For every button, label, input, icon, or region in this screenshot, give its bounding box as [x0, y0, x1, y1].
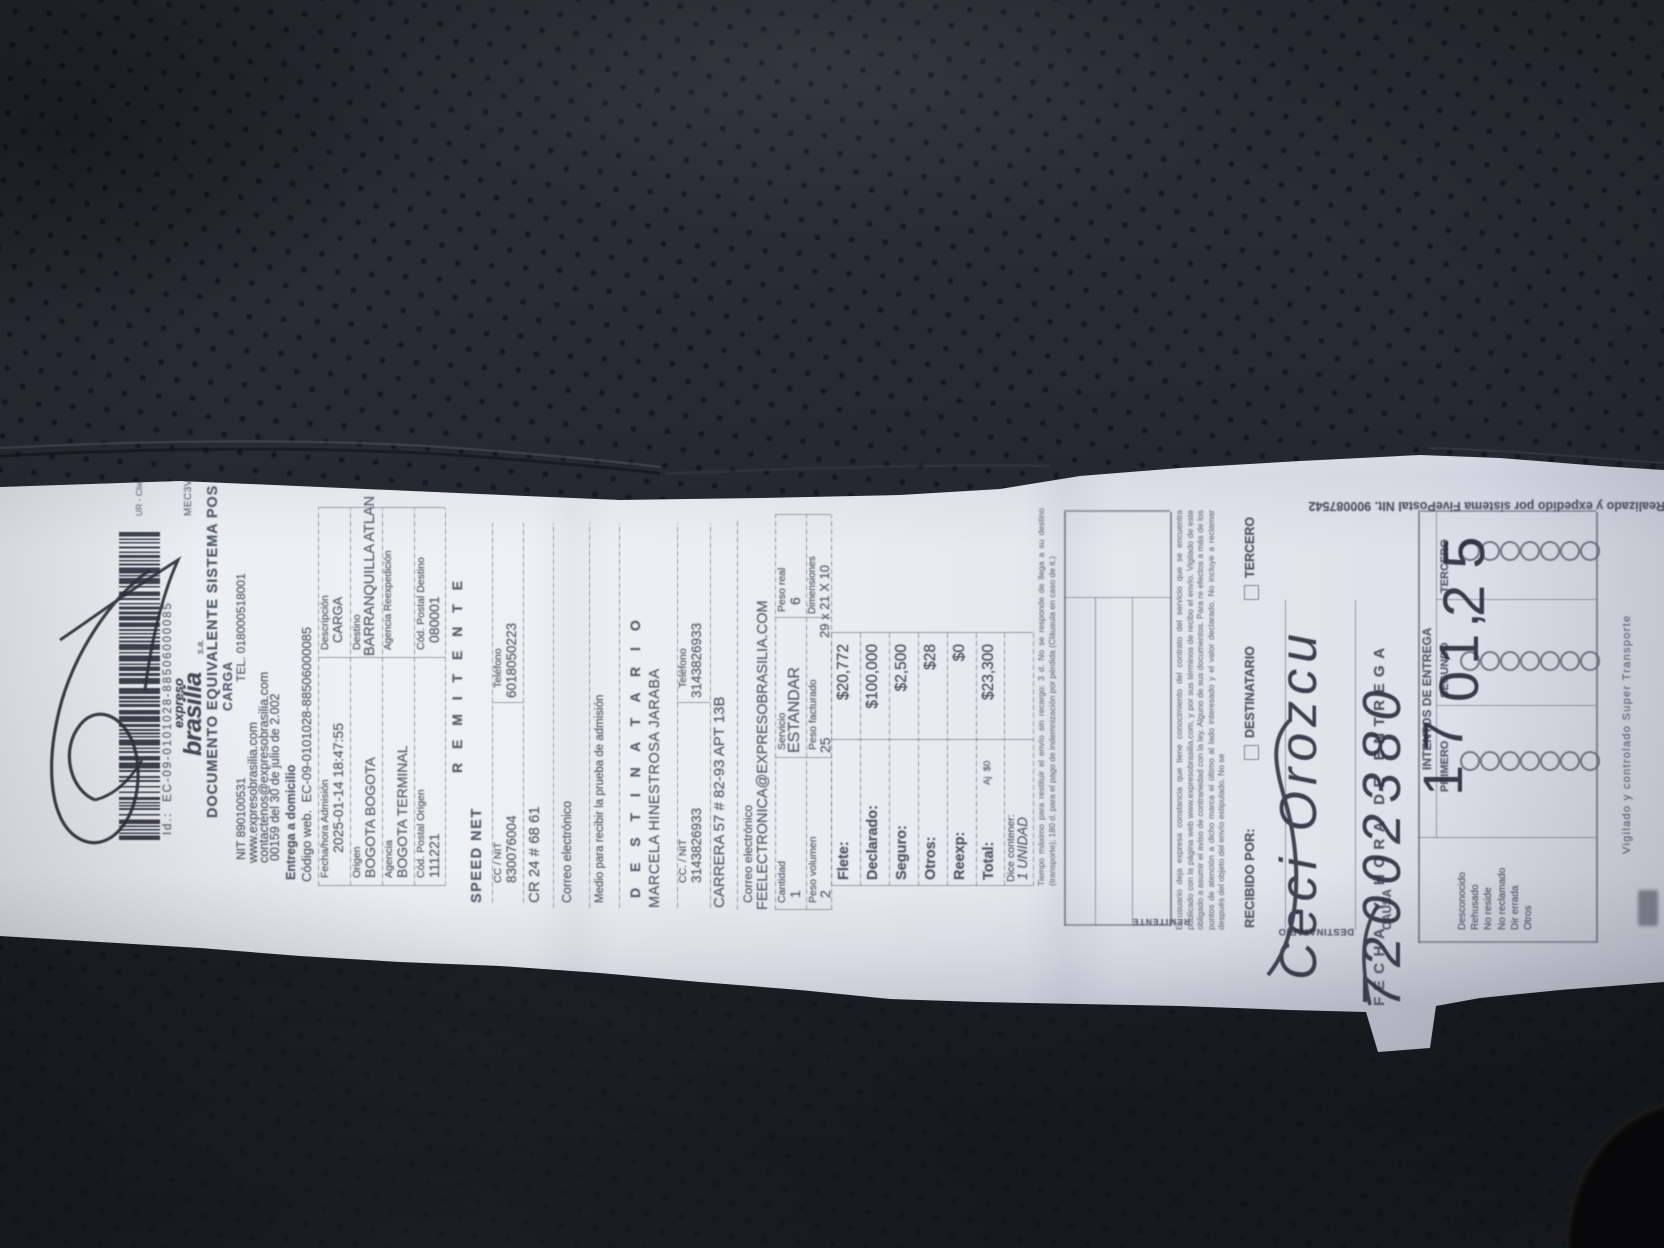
svg-text:01,: 01,	[1427, 606, 1490, 702]
svg-text:72002380: 72002380	[1352, 680, 1412, 1008]
svg-text:17: 17	[1411, 706, 1474, 796]
svg-text:25: 25	[1432, 520, 1497, 617]
svg-text:Ceci Orozcu: Ceci Orozcu	[1270, 628, 1328, 980]
